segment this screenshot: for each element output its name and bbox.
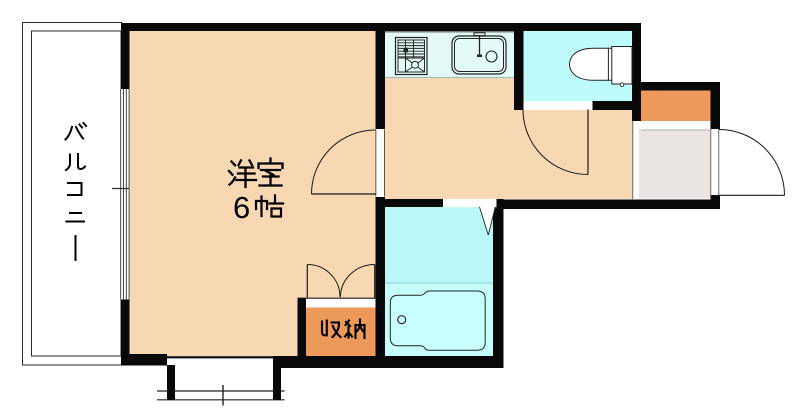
svg-text:6: 6 — [233, 190, 250, 225]
